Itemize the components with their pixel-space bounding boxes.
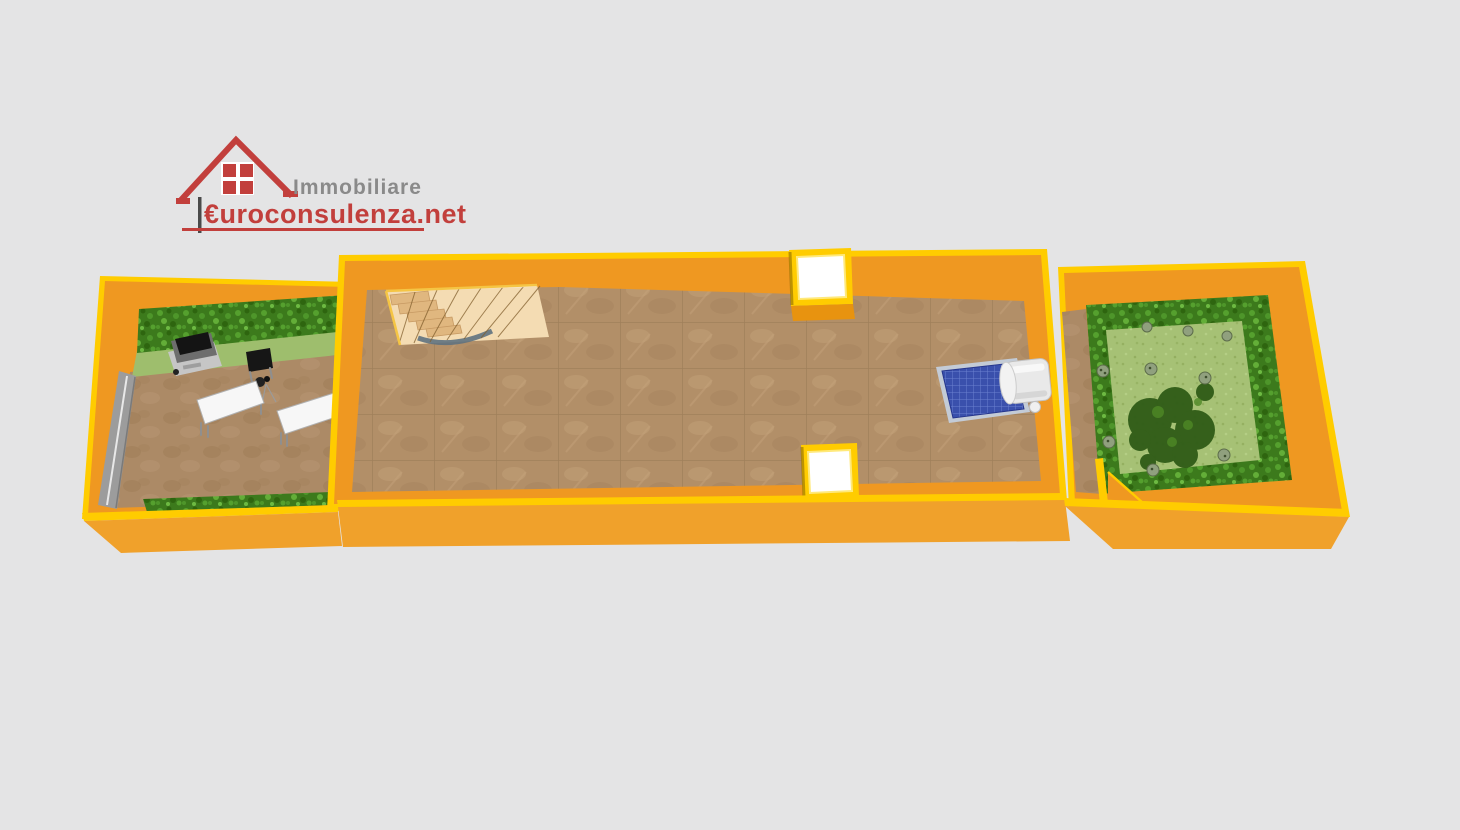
floorplan-3d: Immobiliare €uroconsulenza.net [0,0,1460,830]
main-hall [327,248,1067,511]
floorplan-render: Immobiliare €uroconsulenza.net [0,0,1460,830]
window-icon [221,162,254,195]
skylight-bottom [801,443,859,499]
left-courtyard [82,276,353,519]
tank-valve [1030,402,1041,413]
brand-immobiliare: Immobiliare [293,176,422,199]
brand-euroconsulenza: €uroconsulenza.net [204,199,467,229]
right-garden [1058,261,1350,517]
logo-underline [182,228,424,231]
spiral-staircase [386,285,549,345]
house-post [198,197,202,233]
front-face-middle [338,500,1070,547]
water-tank [998,358,1052,405]
skylight-top [789,248,855,321]
